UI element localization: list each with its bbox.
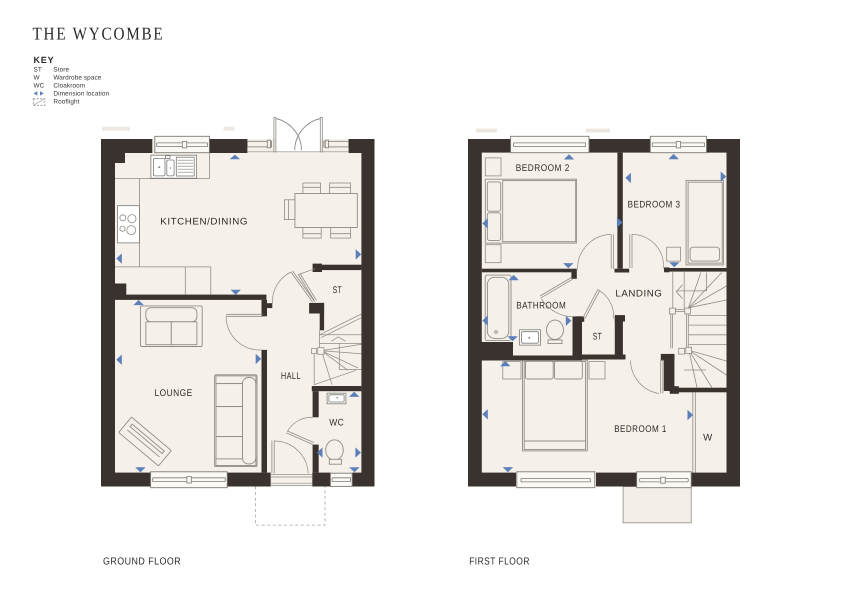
svg-text:ST: ST (593, 331, 603, 342)
svg-text:KITCHEN/DINING: KITCHEN/DINING (160, 216, 248, 227)
svg-text:LOUNGE: LOUNGE (155, 388, 193, 399)
svg-text:ST: ST (34, 67, 42, 74)
svg-text:Rooflight: Rooflight (53, 99, 79, 106)
svg-text:BEDROOM 1: BEDROOM 1 (614, 424, 667, 435)
svg-text:W: W (34, 74, 41, 81)
svg-text:HALL: HALL (281, 371, 301, 382)
svg-text:BATHROOM: BATHROOM (516, 301, 566, 312)
svg-text:WC: WC (329, 418, 344, 429)
svg-text:Cloakroom: Cloakroom (53, 82, 85, 89)
svg-text:W: W (703, 433, 713, 444)
svg-text:ST: ST (333, 285, 343, 296)
svg-text:BEDROOM 3: BEDROOM 3 (628, 200, 681, 211)
svg-text:KEY: KEY (34, 55, 55, 65)
svg-text:Dimension location: Dimension location (53, 91, 109, 98)
svg-text:GROUND FLOOR: GROUND FLOOR (103, 557, 181, 568)
svg-text:WC: WC (34, 82, 45, 89)
svg-text:THE WYCOMBE: THE WYCOMBE (33, 23, 165, 43)
svg-text:Wardrobe space: Wardrobe space (53, 74, 101, 81)
svg-text:FIRST FLOOR: FIRST FLOOR (469, 557, 530, 568)
svg-text:BEDROOM 2: BEDROOM 2 (516, 163, 570, 174)
svg-text:LANDING: LANDING (615, 288, 662, 299)
svg-text:Store: Store (53, 67, 69, 74)
